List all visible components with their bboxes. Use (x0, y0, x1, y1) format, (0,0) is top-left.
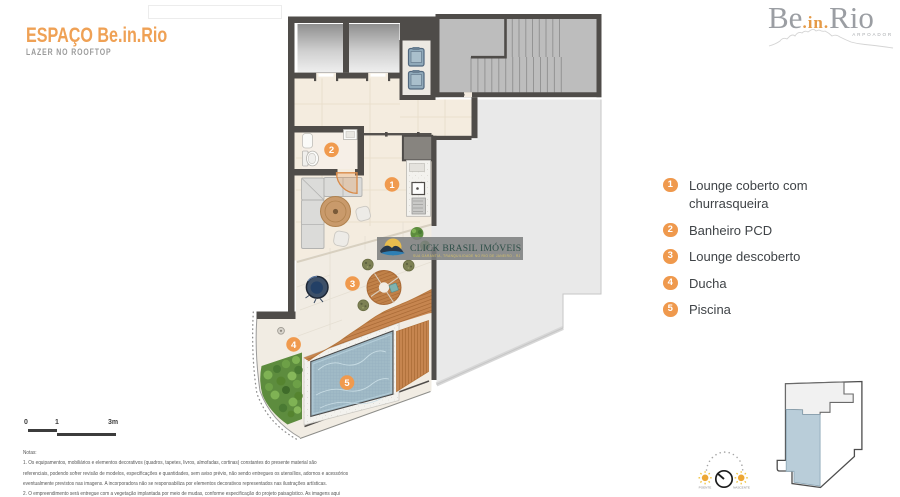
svg-text:POENTE: POENTE (699, 486, 712, 490)
svg-text:3: 3 (350, 279, 355, 290)
svg-text:5: 5 (344, 378, 350, 389)
svg-text:1: 1 (389, 180, 395, 191)
svg-text:4: 4 (291, 340, 297, 351)
svg-text:NASCENTE: NASCENTE (733, 486, 750, 490)
svg-text:2: 2 (329, 145, 334, 156)
